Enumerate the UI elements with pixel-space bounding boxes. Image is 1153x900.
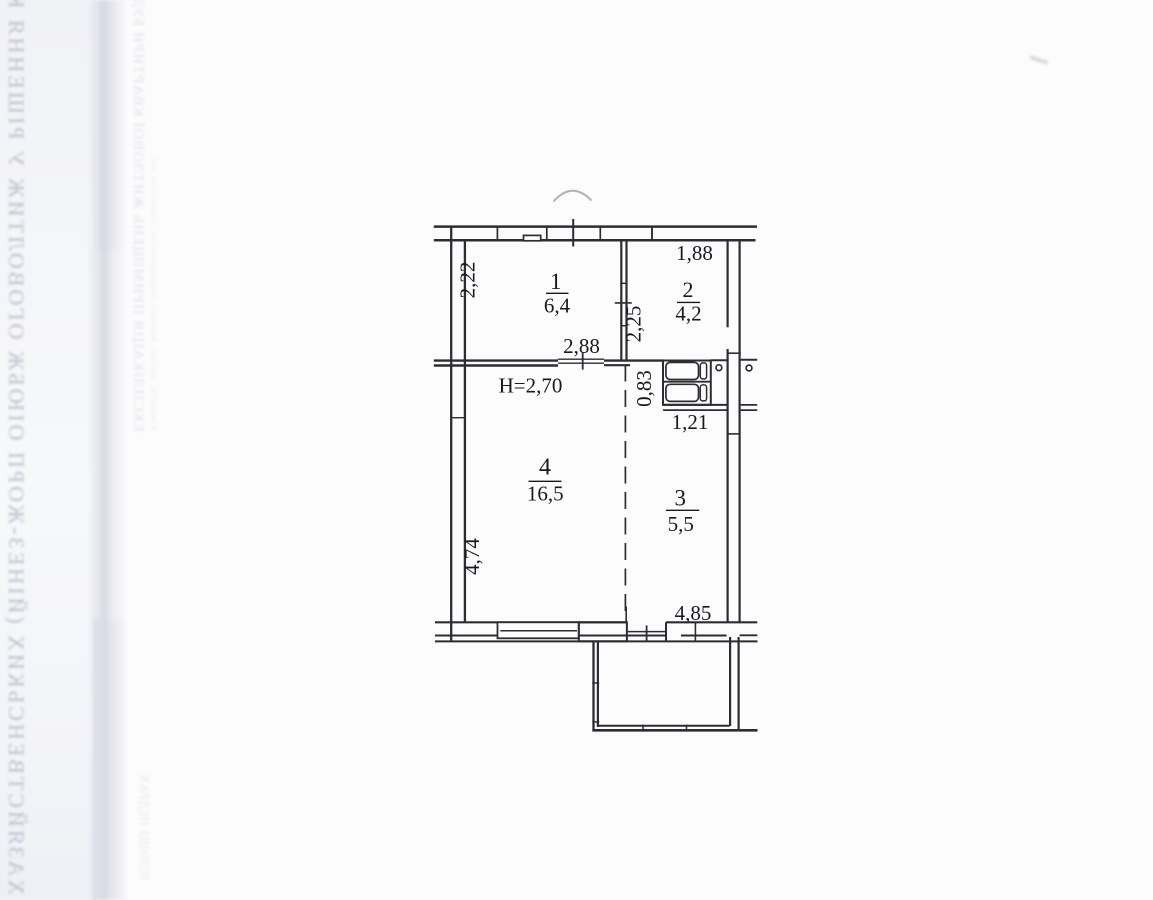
svg-text:1,21: 1,21 xyxy=(672,410,709,434)
svg-text:2,22: 2,22 xyxy=(456,262,480,299)
svg-text:5,5: 5,5 xyxy=(668,512,694,536)
svg-text:0,83: 0,83 xyxy=(632,370,656,407)
svg-text:4,2: 4,2 xyxy=(675,302,701,326)
svg-text:2,88: 2,88 xyxy=(563,334,600,358)
svg-text:4,85: 4,85 xyxy=(675,601,712,625)
svg-text:1: 1 xyxy=(550,269,562,294)
svg-text:4: 4 xyxy=(539,455,551,481)
svg-text:16,5: 16,5 xyxy=(527,482,564,506)
svg-text:1,88: 1,88 xyxy=(676,241,713,265)
svg-text:2,25: 2,25 xyxy=(622,306,646,343)
svg-text:Н=2,70: Н=2,70 xyxy=(499,374,563,398)
svg-text:3: 3 xyxy=(675,486,687,511)
svg-text:2: 2 xyxy=(683,277,694,302)
svg-text:4,74: 4,74 xyxy=(460,538,484,575)
svg-text:6,4: 6,4 xyxy=(544,294,571,318)
